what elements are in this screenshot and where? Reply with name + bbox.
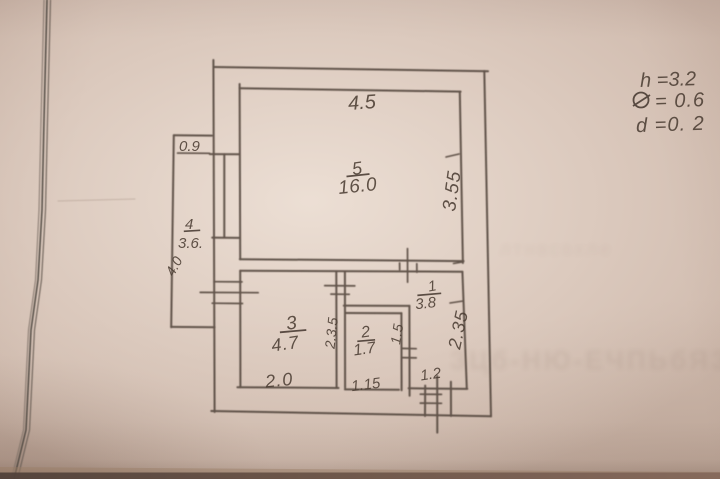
svg-text:= 0.6: = 0.6 (655, 89, 706, 113)
svg-text:16.0: 16.0 (337, 174, 378, 199)
svg-text:4.7: 4.7 (270, 332, 301, 356)
svg-text:1: 1 (427, 277, 438, 295)
svg-text:лтнвсвхле: лтнвсвхле (500, 239, 613, 259)
svg-text:1.7: 1.7 (352, 339, 377, 359)
svg-text:2.3.5: 2.3.5 (321, 316, 340, 350)
svg-text:d =0. 2: d =0. 2 (636, 113, 705, 137)
svg-text:4.0: 4.0 (162, 253, 186, 278)
svg-text:3.8: 3.8 (414, 294, 437, 313)
svg-text:1.2: 1.2 (419, 365, 443, 385)
svg-text:2: 2 (359, 324, 371, 342)
svg-text:h =3.2: h =3.2 (640, 68, 697, 92)
svg-text:0.9: 0.9 (179, 138, 201, 155)
svg-text:3.6.: 3.6. (178, 235, 203, 252)
svg-text:4.5: 4.5 (347, 91, 377, 115)
svg-text:1.5: 1.5 (387, 322, 406, 345)
svg-text:1.15: 1.15 (350, 375, 382, 396)
svg-text:ЗЦб-НЮ-ЕЧПЬбЯЗ: ЗЦб-НЮ-ЕЧПЬбЯЗ (450, 345, 720, 375)
svg-text:2.0: 2.0 (263, 369, 294, 392)
